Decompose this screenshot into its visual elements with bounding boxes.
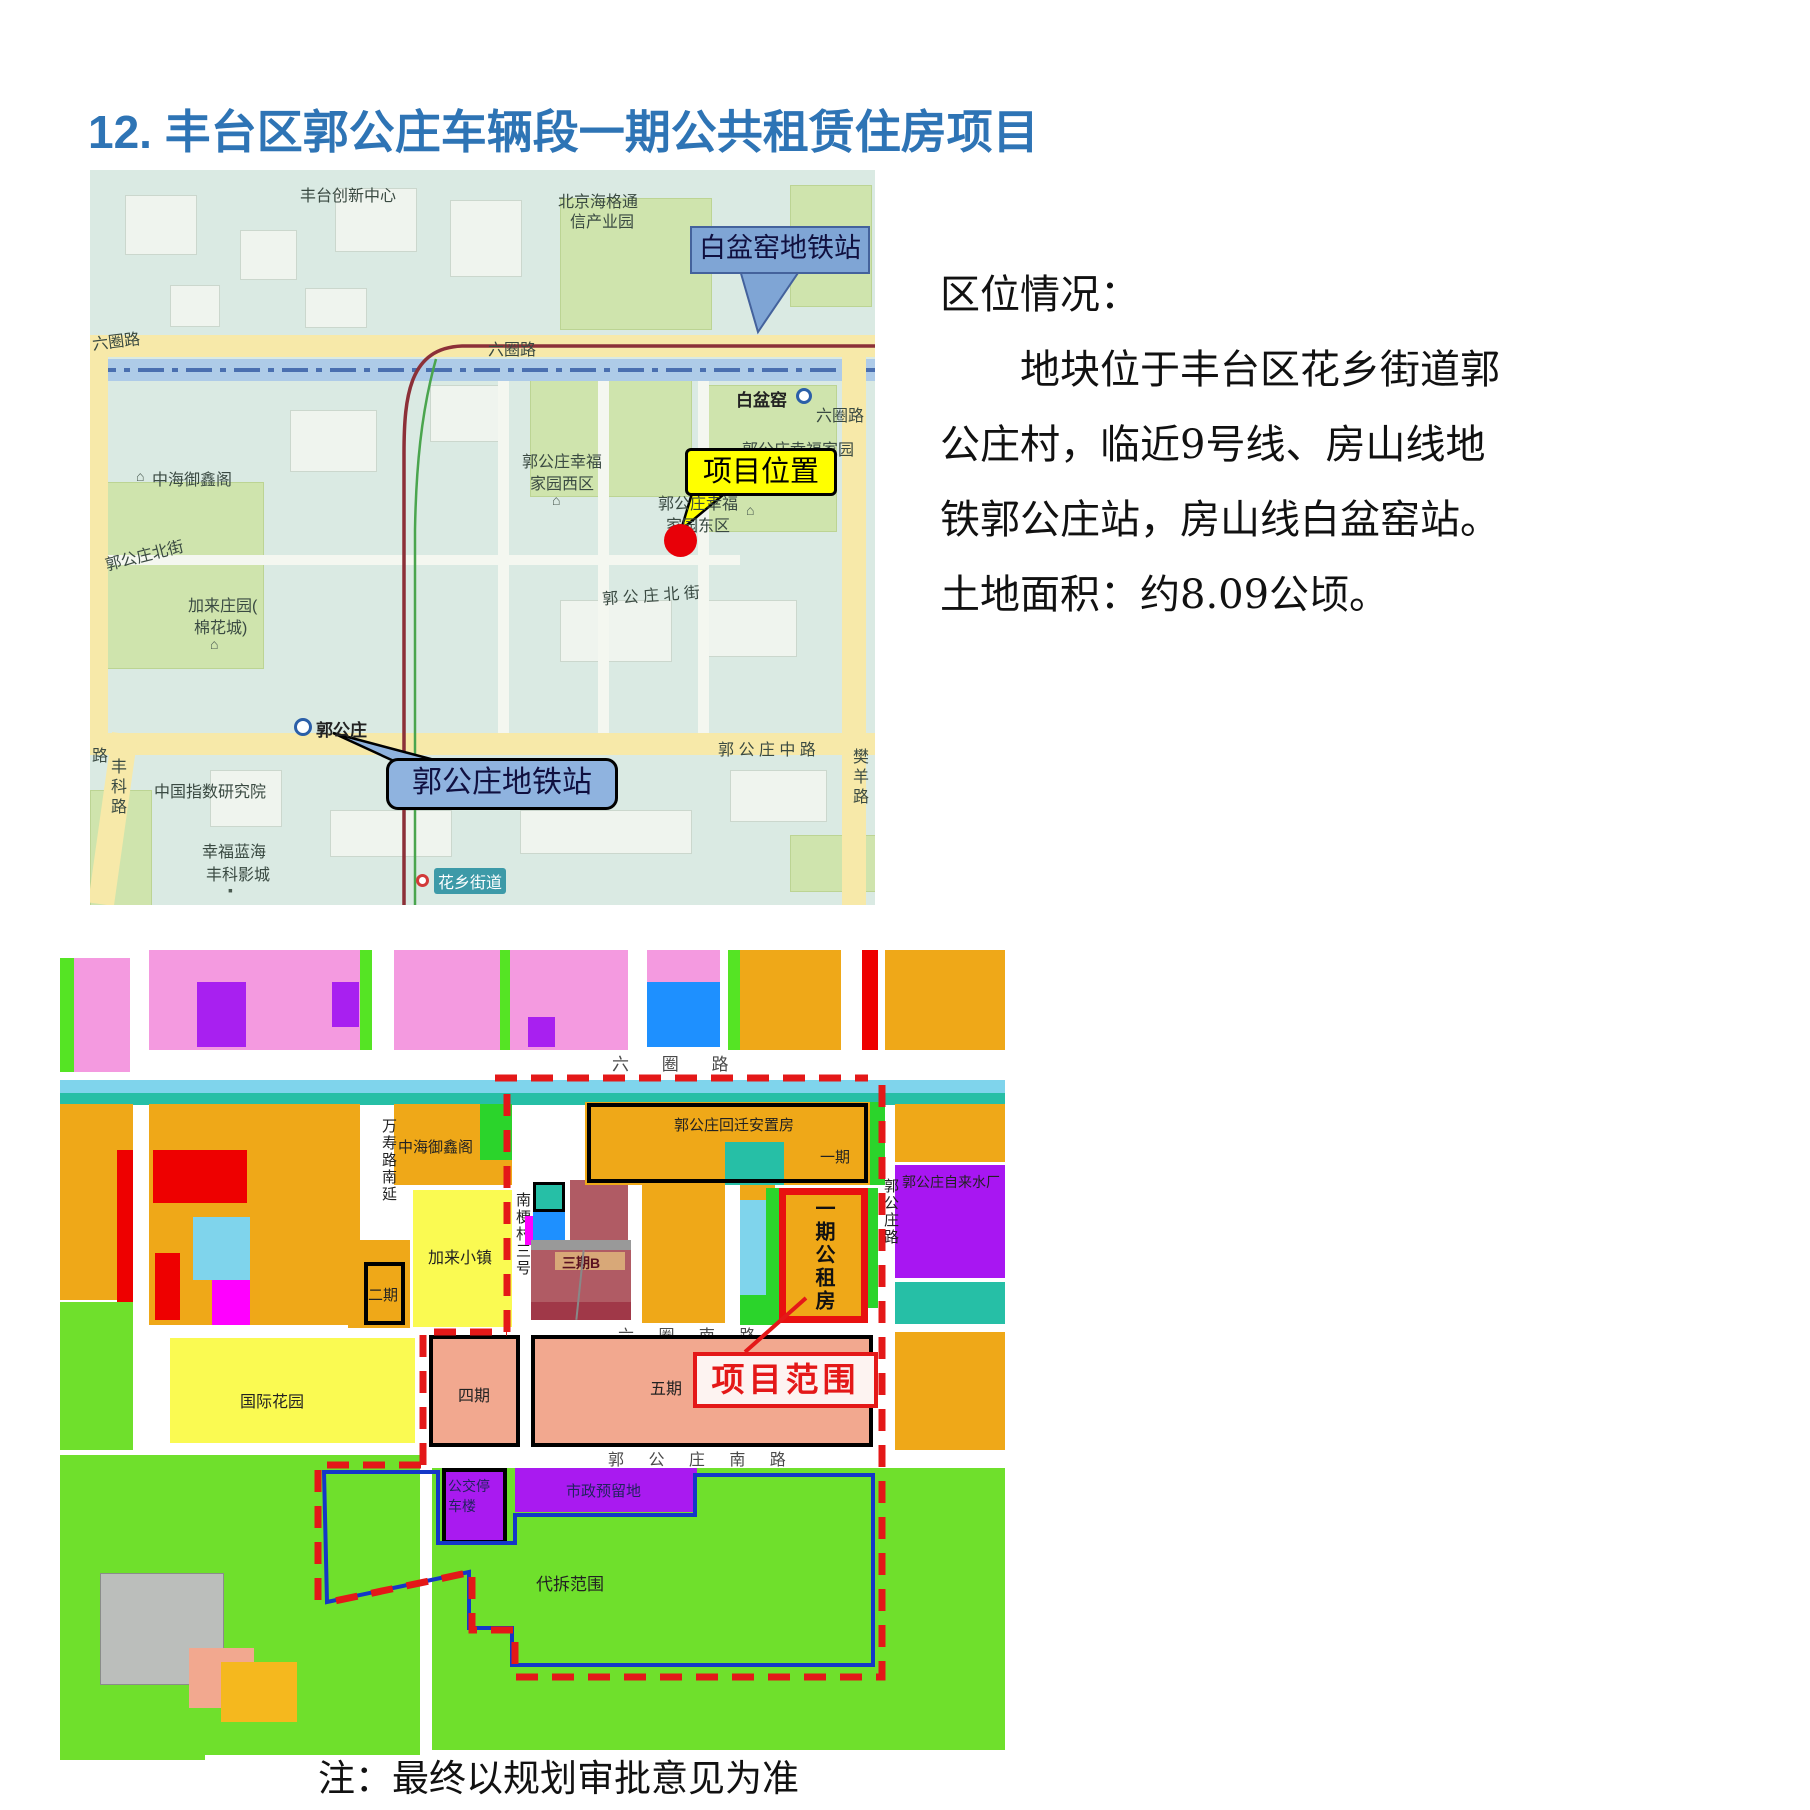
station-label: 郭公庄: [316, 716, 367, 741]
huaxiang-badge: 花乡街道: [434, 868, 506, 894]
location-street-map: 丰台创新中心 北京海格通 信产业园 亿城天筑 六圈路 六圈路 白盆窑 六圈路 ⌂…: [90, 170, 875, 905]
road-label: 丰科路: [104, 758, 128, 818]
cinema-icon: ▪: [228, 882, 233, 898]
callout-project-location: 项目位置: [685, 448, 837, 496]
metro-station-icon: [796, 388, 812, 404]
location-description: 区位情况： 地块位于丰台区花乡街道郭 公庄村，临近9号线、房山线地 铁郭公庄站，…: [940, 258, 1570, 633]
info-line: 土地面积：约8.09公顷。: [940, 558, 1570, 633]
temple-icon: ⌂: [210, 636, 218, 652]
huaxiang-marker-icon: [416, 874, 429, 887]
temple-icon: ⌂: [552, 492, 560, 508]
document-page: 12. 丰台区郭公庄车辆段一期公共租赁住房项目: [0, 0, 1810, 1810]
info-heading: 区位情况：: [940, 258, 1570, 333]
road-label: 六圈路: [816, 402, 864, 426]
footnote: 注：最终以规划审批意见为准: [318, 1748, 799, 1802]
project-location-marker: [664, 524, 697, 557]
place-label: 棉花城): [194, 614, 247, 638]
place-label: 丰台创新中心: [300, 182, 396, 206]
info-line: 公庄村，临近9号线、房山线地: [940, 408, 1570, 483]
place-label: 郭公庄幸福: [522, 448, 602, 472]
info-line: 地块位于丰台区花乡街道郭: [940, 333, 1570, 408]
place-label: 家园西区: [530, 470, 594, 494]
info-line: 铁郭公庄站，房山线白盆窑站。: [940, 483, 1570, 558]
place-label: 中海御鑫阁: [152, 466, 232, 490]
callout-baipenyao-station: 白盆窑地铁站: [690, 226, 870, 274]
place-label: 中国指数研究院: [154, 778, 266, 802]
temple-icon: ⌂: [746, 502, 754, 518]
road-label: 樊羊路: [846, 748, 870, 808]
place-label: 丰科影城: [206, 861, 270, 885]
temple-icon: ⌂: [136, 468, 144, 484]
planning-zoning-map: 六 圈 路 中海御鑫阁 加来小镇 二期 万寿路南延 南梗村三号 三期B: [60, 950, 1010, 1760]
callout-project-scope: 项目范围: [693, 1352, 878, 1408]
metro-station-icon: [294, 718, 312, 736]
page-title: 12. 丰台区郭公庄车辆段一期公共租赁住房项目: [88, 96, 1388, 162]
road-label: 郭 公 庄 中 路: [718, 736, 816, 760]
road-label: 六圈路: [488, 336, 536, 360]
place-label: 加来庄园(: [188, 592, 257, 616]
station-label: 白盆窑: [736, 386, 787, 411]
callout-guogongzhuang-station: 郭公庄地铁站: [386, 758, 618, 810]
place-label: 幸福蓝海: [202, 838, 266, 862]
place-label: 信产业园: [570, 208, 634, 232]
